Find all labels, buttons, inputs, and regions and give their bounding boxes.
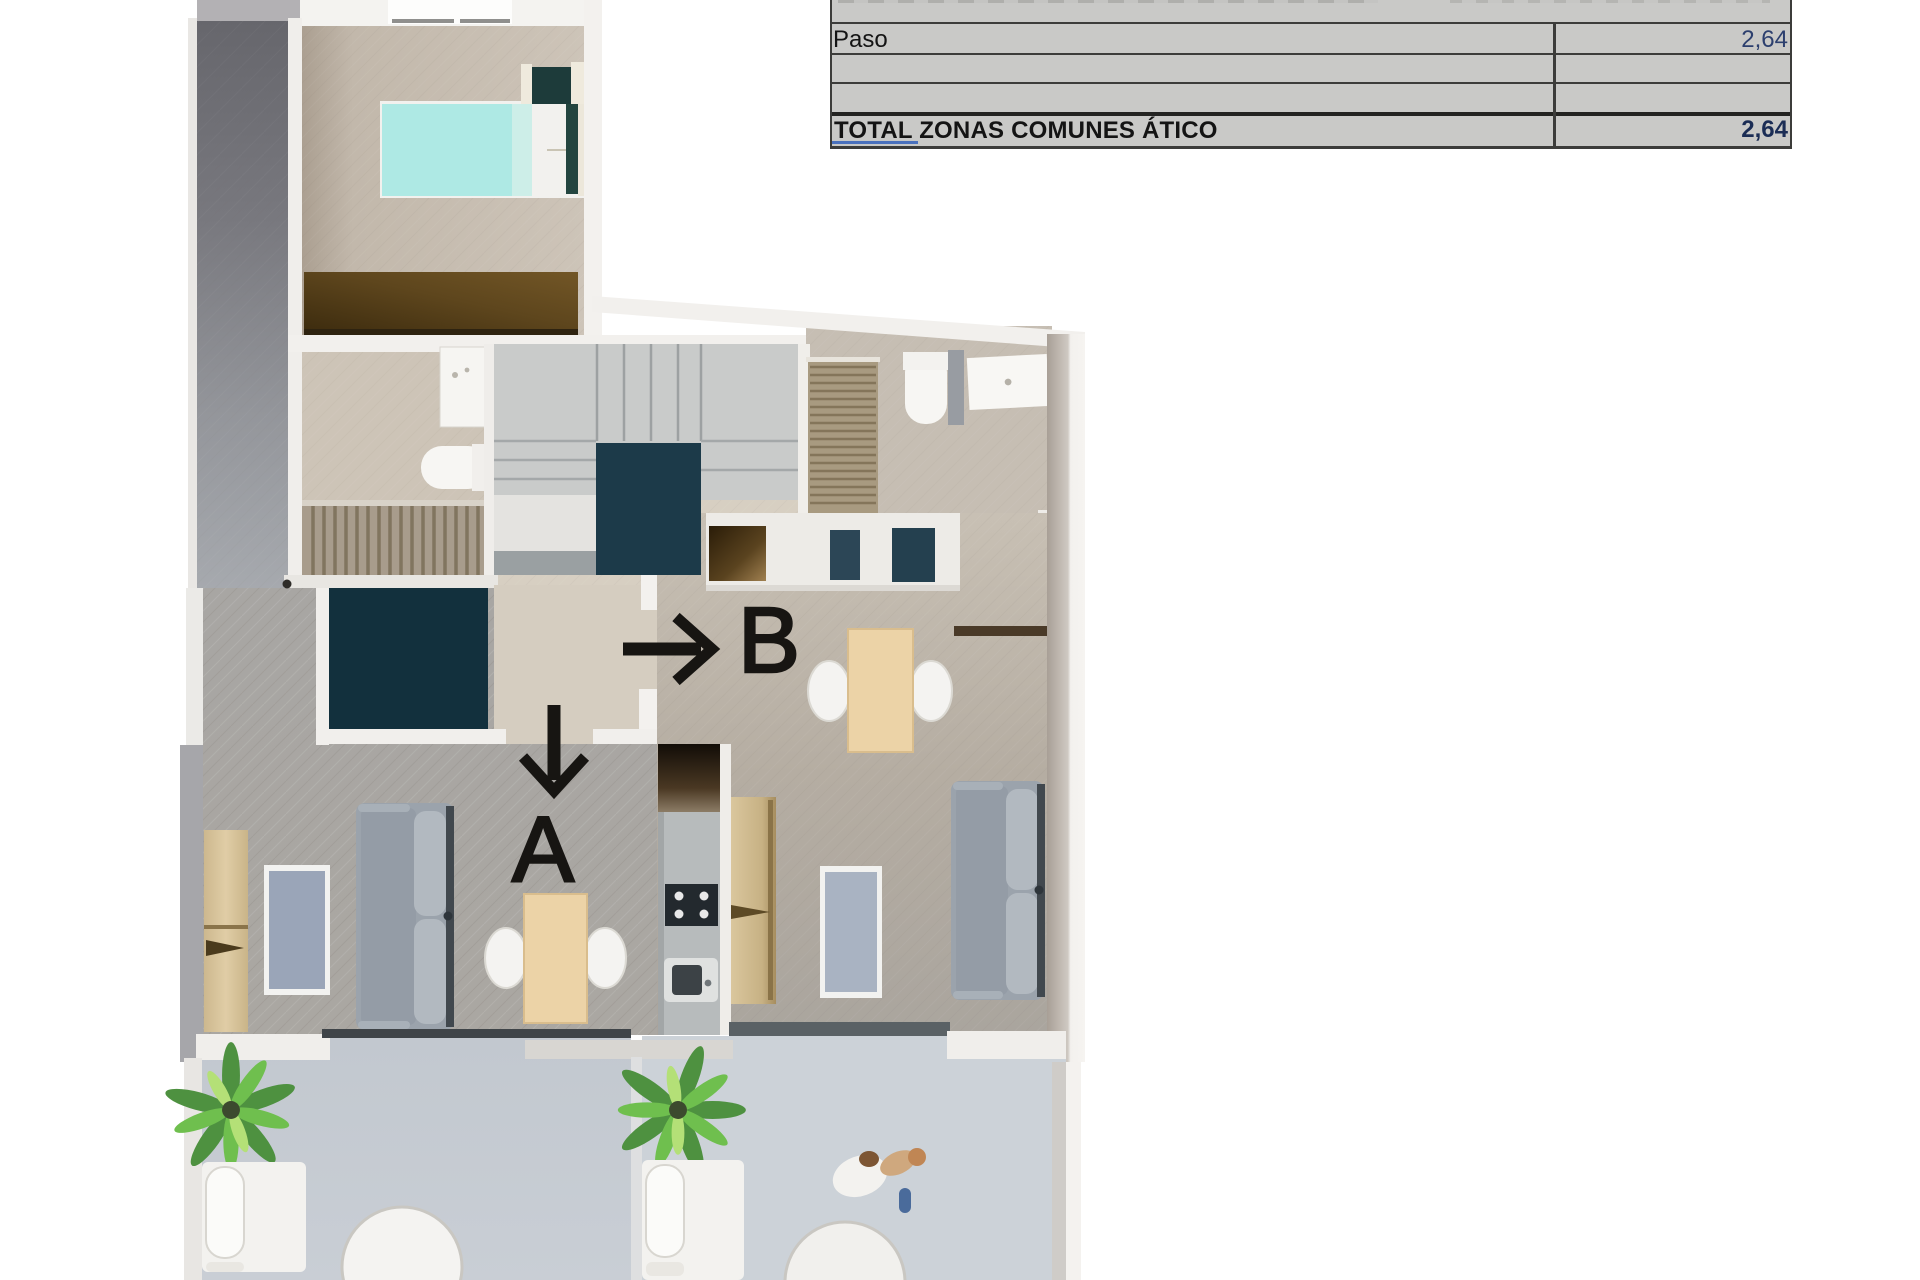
svg-text:A: A xyxy=(512,797,574,901)
svg-text:B: B xyxy=(738,588,800,692)
